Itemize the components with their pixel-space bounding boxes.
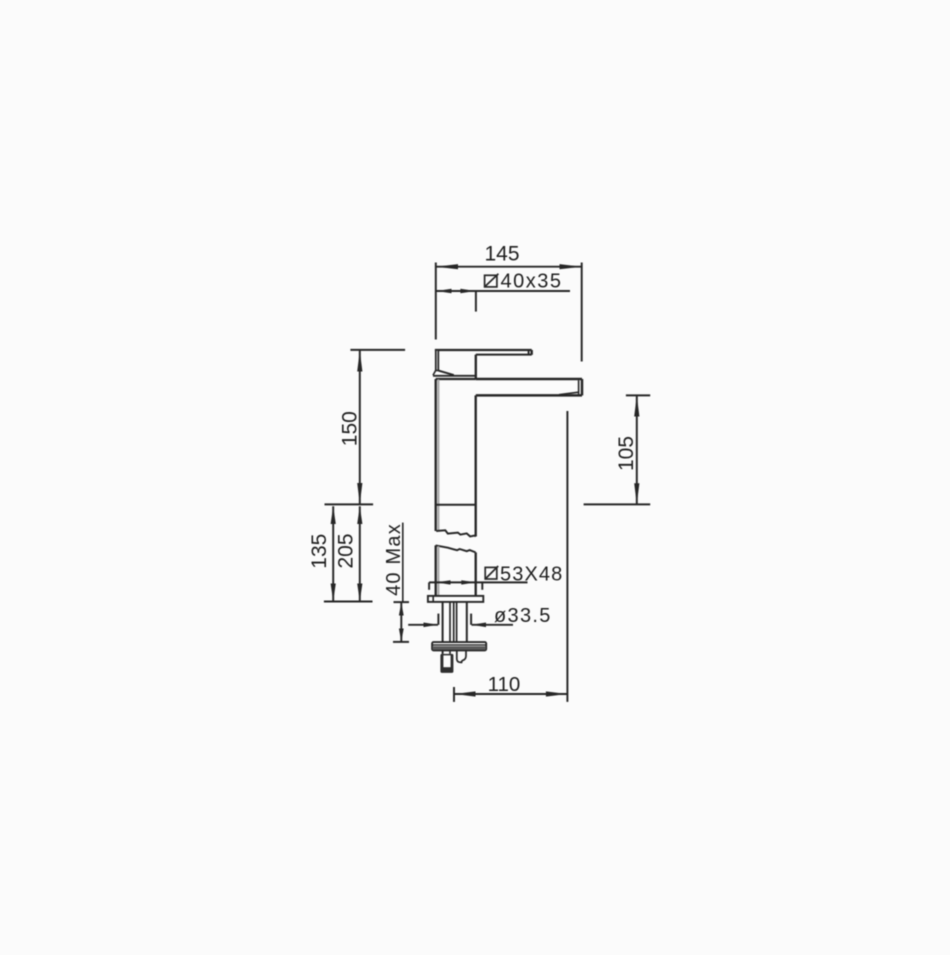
svg-text:110: 110 [488,673,521,696]
svg-text:150: 150 [338,411,361,446]
svg-text:53X48: 53X48 [500,564,563,586]
svg-text:105: 105 [615,436,638,471]
svg-text:40 Max: 40 Max [383,523,405,596]
svg-text:ø33.5: ø33.5 [494,605,552,627]
svg-text:135: 135 [308,534,331,569]
svg-text:145: 145 [484,243,519,266]
svg-text:205: 205 [335,533,358,568]
svg-text:40x35: 40x35 [501,271,563,293]
